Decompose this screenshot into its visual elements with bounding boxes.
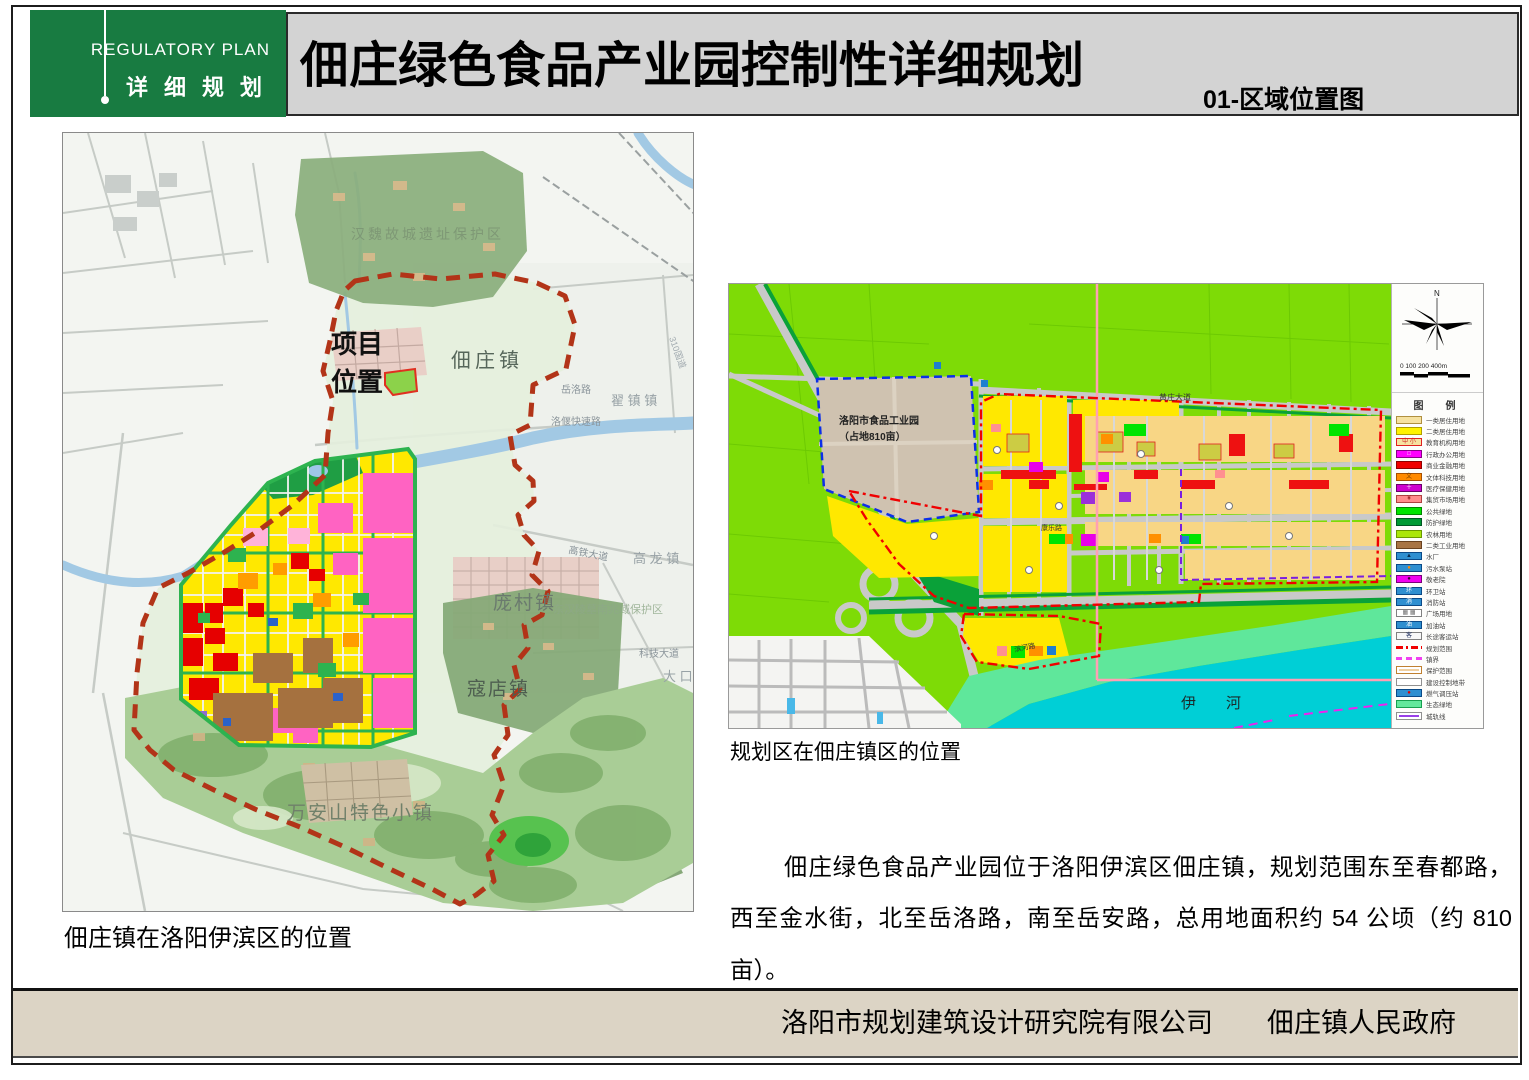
- legend-swatch: 油: [1396, 621, 1422, 629]
- legend-item: ●污水泵站: [1396, 562, 1479, 573]
- legend-swatch: [1396, 416, 1422, 424]
- legend-item: 一类居住用地: [1396, 414, 1479, 425]
- scale-bar: [1400, 372, 1470, 378]
- legend-swatch: ●: [1396, 689, 1422, 697]
- brand-divider-dot: [101, 96, 109, 104]
- legend-swatch: ¥: [1396, 495, 1422, 503]
- legend-label: 生态绿地: [1426, 699, 1452, 709]
- legend-item: ●敬老院: [1396, 573, 1479, 584]
- hanwei-reserve-label: 汉魏故城遗址保护区: [351, 226, 504, 242]
- industry-park-label-2: （占地810亩）: [839, 430, 906, 443]
- legend-swatch: ＋: [1396, 484, 1422, 492]
- gaolong-town-label: 高 龙 镇: [633, 551, 679, 566]
- legend-item: 规划范围: [1396, 642, 1479, 653]
- legend-item: ¥集贸市场用地: [1396, 494, 1479, 505]
- legend-swatch: □: [1396, 450, 1422, 458]
- legend-items: 一类居住用地二类居住用地中 小教育机构用地□行政办公用地商业金融用地文文体科技用…: [1392, 414, 1483, 722]
- legend-swatch: ●: [1396, 564, 1422, 572]
- legend-label: 防护绿地: [1426, 517, 1452, 527]
- yueluo-road-label: 岳洛路: [561, 383, 591, 396]
- footer-credits: 洛阳市规划建筑设计研究院有限公司 佃庄镇人民政府: [13, 991, 1518, 1056]
- title-bar: 佃庄绿色食品产业园控制性详细规划 01-区域位置图: [286, 12, 1519, 116]
- legend-swatch-icon: 环: [1397, 587, 1421, 596]
- legend-item: 建设控制地带: [1396, 676, 1479, 687]
- legend-label: 镇界: [1426, 654, 1439, 664]
- dianzhuang-town-label: 佃庄镇: [451, 349, 523, 372]
- legend-item: 农林用地: [1396, 528, 1479, 539]
- town-map-svg: 洛阳市食品工业园 （占地810亩） 黄庄大道 康乐路 滨河路 伊 河: [729, 284, 1391, 728]
- legend-item: 公共绿地: [1396, 505, 1479, 516]
- legend-label: 消防站: [1426, 597, 1446, 607]
- legend-item: ●燃气调压站: [1396, 687, 1479, 698]
- legend-item: □行政办公用地: [1396, 448, 1479, 459]
- kangle-road-label: 康乐路: [1041, 523, 1062, 532]
- pangcun-town-label: 庞村镇: [493, 592, 556, 614]
- legend-swatch: 消: [1396, 598, 1422, 606]
- keji-road-label: 科技大道: [639, 647, 679, 660]
- legend-label: 文体科技用地: [1426, 472, 1465, 482]
- wananshan-label: 万安山特色小镇: [287, 802, 434, 824]
- legend-column: N 0 100 200 400m: [1391, 284, 1483, 728]
- brand-box: REGULATORY PLAN 详细规划: [30, 10, 286, 117]
- legend-swatch: [1396, 657, 1422, 660]
- legend-item: 二类工业用地: [1396, 539, 1479, 550]
- dakou-town-label: 大 口 镇: [663, 669, 693, 684]
- legend-swatch: [1396, 678, 1422, 686]
- project-site: [385, 369, 417, 395]
- legend-swatch-icon: 油: [1397, 621, 1421, 630]
- legend-swatch: [1396, 712, 1422, 720]
- legend-swatch-icon: ●: [1397, 564, 1421, 573]
- brand-chinese: 详细规划: [126, 70, 278, 102]
- legend-swatch: ▦ ▦: [1396, 609, 1422, 617]
- legend-label: 商业金融用地: [1426, 460, 1465, 470]
- project-location-label-1: 项目: [331, 329, 383, 359]
- page-title: 佃庄绿色食品产业园控制性详细规划: [300, 14, 1084, 114]
- legend-label: 敬老院: [1426, 574, 1446, 584]
- legend-item: 客长途客运站: [1396, 630, 1479, 641]
- legend-item: 消消防站: [1396, 596, 1479, 607]
- north-label: N: [1434, 289, 1440, 298]
- legend-label: 二类工业用地: [1426, 540, 1465, 550]
- legend-label: 行政办公用地: [1426, 449, 1465, 459]
- legend-swatch: ●: [1396, 575, 1422, 583]
- legend-item: ＋医疗保健用地: [1396, 482, 1479, 493]
- legend-label: 城轨线: [1426, 711, 1446, 721]
- legend-label: 农林用地: [1426, 529, 1452, 539]
- industry-park-label-1: 洛阳市食品工业园: [839, 414, 919, 427]
- legend-label: 保护范围: [1426, 665, 1452, 675]
- legend-label: 加油站: [1426, 620, 1446, 630]
- legend-swatch-icon: 文: [1397, 473, 1421, 482]
- legend-item: 商业金融用地: [1396, 460, 1479, 471]
- left-map-caption: 佃庄镇在洛阳伊滨区的位置: [64, 918, 352, 953]
- legend-label: 教育机构用地: [1426, 437, 1465, 447]
- legend-swatch: 环: [1396, 587, 1422, 595]
- compass-box: N 0 100 200 400m: [1392, 284, 1483, 393]
- legend-swatch: 客: [1396, 632, 1422, 640]
- legend-item: 文文体科技用地: [1396, 471, 1479, 482]
- huangzhuang-road-label: 黄庄大道: [1159, 392, 1191, 402]
- legend-swatch-icon: ●: [1397, 689, 1421, 698]
- legend-label: 建设控制地带: [1426, 677, 1465, 687]
- legend-swatch-icon: 中 小: [1397, 438, 1421, 447]
- legend-swatch: [1396, 427, 1422, 435]
- legend-swatch: [1396, 700, 1422, 708]
- luoyan-expressway-label: 洛偃快速路: [551, 415, 601, 428]
- legend-swatch: [1396, 530, 1422, 538]
- legend-swatch: ▲: [1396, 552, 1422, 560]
- koudian-town-label: 寇店镇: [467, 678, 530, 700]
- legend-swatch-icon: ＋: [1397, 484, 1421, 493]
- plan-sheet: REGULATORY PLAN 详细规划 佃庄绿色食品产业园控制性详细规划 01…: [0, 0, 1529, 1080]
- legend-swatch-icon: ▦ ▦: [1397, 609, 1421, 618]
- legend-item: 中 小教育机构用地: [1396, 437, 1479, 448]
- zhaizhen-town-label: 翟 镇 镇: [611, 393, 657, 408]
- legend-item: 镇界: [1396, 653, 1479, 664]
- donghan-reserve-label: 东汉陵墓南兆域保护区: [553, 602, 663, 616]
- legend-label: 长途客运站: [1426, 631, 1459, 641]
- legend-swatch: [1396, 541, 1422, 549]
- legend-item: ▦ ▦广场用地: [1396, 608, 1479, 619]
- legend-swatch: [1396, 518, 1422, 526]
- legend-label: 规划范围: [1426, 643, 1452, 653]
- legend-swatch: [1396, 666, 1422, 674]
- legend-item: 城轨线: [1396, 710, 1479, 721]
- description-paragraph: 佃庄绿色食品产业园位于洛阳伊滨区佃庄镇，规划范围东至春都路，西至金水街，北至岳洛…: [730, 842, 1512, 997]
- district-map-svg: 项目 位置 佃庄镇 汉魏故城遗址保护区 翟 镇 镇 岳洛路 洛偃快速路 庞村镇 …: [63, 133, 693, 911]
- north-arrow-icon: N 0 100 200 400m: [1392, 284, 1482, 389]
- legend-swatch: 文: [1396, 473, 1422, 481]
- legend-label: 广场用地: [1426, 608, 1452, 618]
- legend-swatch-icon: ▲: [1397, 552, 1421, 561]
- legend-item: 二类居住用地: [1396, 425, 1479, 436]
- legend-swatch: [1396, 461, 1422, 469]
- legend-item: 防护绿地: [1396, 517, 1479, 528]
- legend-label: 燃气调压站: [1426, 688, 1459, 698]
- legend-swatch: 中 小: [1396, 438, 1422, 446]
- legend-swatch: [1396, 646, 1422, 649]
- legend-item: 保护范围: [1396, 665, 1479, 676]
- scale-labels: 0 100 200 400m: [1400, 363, 1447, 370]
- legend-label: 公共绿地: [1426, 506, 1452, 516]
- legend-item: ▲水厂: [1396, 551, 1479, 562]
- legend-swatch-icon: 消: [1397, 598, 1421, 607]
- town-location-panel: 洛阳市食品工业园 （占地810亩） 黄庄大道 康乐路 滨河路 伊 河 N: [728, 283, 1484, 729]
- footer-bar: 洛阳市规划建筑设计研究院有限公司 佃庄镇人民政府: [13, 988, 1518, 1058]
- legend-label: 水厂: [1426, 551, 1439, 561]
- legend-label: 一类居住用地: [1426, 415, 1465, 425]
- legend-item: 环环卫站: [1396, 585, 1479, 596]
- legend-label: 环卫站: [1426, 586, 1446, 596]
- legend-swatch-icon: □: [1397, 450, 1421, 459]
- district-location-map: 项目 位置 佃庄镇 汉魏故城遗址保护区 翟 镇 镇 岳洛路 洛偃快速路 庞村镇 …: [62, 132, 694, 912]
- legend-label: 二类居住用地: [1426, 426, 1465, 436]
- brand-english: REGULATORY PLAN: [91, 40, 270, 60]
- legend-item: 生态绿地: [1396, 699, 1479, 710]
- legend-swatch-icon: ●: [1397, 575, 1421, 584]
- legend-swatch-icon: 客: [1397, 632, 1421, 641]
- legend-label: 污水泵站: [1426, 563, 1452, 573]
- project-location-label-2: 位置: [331, 367, 383, 397]
- legend-label: 集贸市场用地: [1426, 494, 1465, 504]
- legend-title: 图 例: [1392, 397, 1483, 412]
- legend-label: 医疗保健用地: [1426, 483, 1465, 493]
- sheet-number-label: 01-区域位置图: [1203, 80, 1364, 116]
- legend-swatch: [1396, 507, 1422, 515]
- yi-river-label: 伊 河: [1181, 695, 1241, 712]
- legend-swatch-icon: ¥: [1397, 495, 1421, 504]
- legend-item: 油加油站: [1396, 619, 1479, 630]
- right-map-caption: 规划区在佃庄镇区的位置: [730, 736, 961, 766]
